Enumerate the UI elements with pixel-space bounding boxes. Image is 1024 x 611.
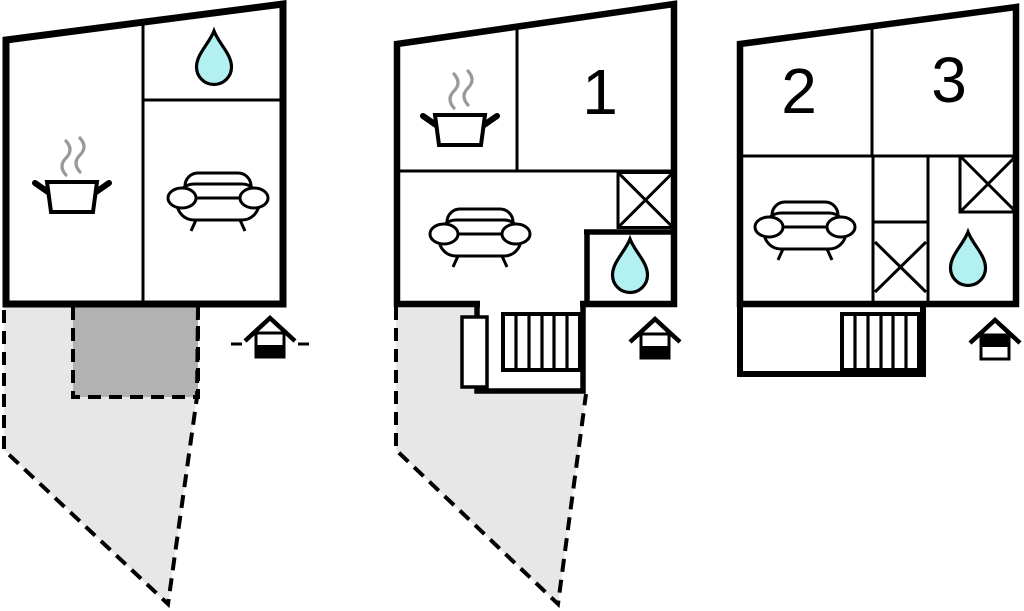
stairs-icon (503, 314, 580, 370)
stairwell-opening (480, 298, 580, 310)
covered-terrace-area (73, 307, 198, 397)
room-number-label: 3 (931, 44, 967, 116)
floorplan-right-unit: 2 3 (740, 7, 1020, 374)
entrance-ground-icon (245, 318, 295, 359)
floorplan-middle-unit: 1 (396, 4, 680, 604)
floorplan-left-unit (4, 4, 309, 604)
entrance-ground-icon (630, 319, 680, 360)
stairs-icon (842, 314, 919, 370)
room-number-label: 2 (781, 55, 817, 127)
chimney-column (462, 317, 487, 387)
floorplan-diagram: 1 2 3 (0, 0, 1024, 611)
entrance-upper-icon (970, 320, 1020, 359)
room-number-label: 1 (582, 56, 618, 128)
